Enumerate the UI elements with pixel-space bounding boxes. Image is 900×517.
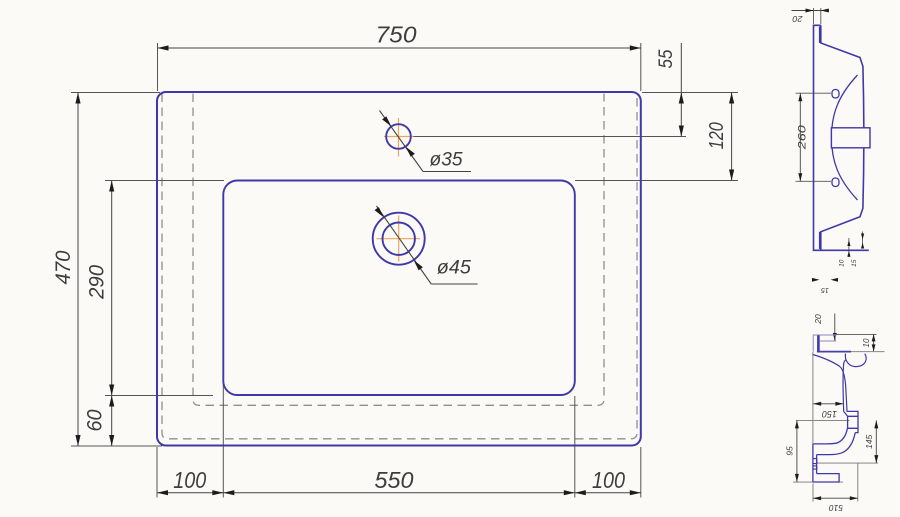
svg-text:550: 550 (375, 467, 414, 493)
svg-text:290: 290 (86, 265, 109, 300)
svg-text:15: 15 (821, 286, 829, 293)
svg-text:150: 150 (822, 409, 837, 419)
svg-text:100: 100 (592, 467, 625, 493)
svg-text:10: 10 (862, 338, 871, 347)
svg-text:ø45: ø45 (437, 258, 471, 279)
svg-text:15: 15 (851, 259, 858, 267)
svg-text:ø35: ø35 (430, 150, 463, 171)
svg-text:260: 260 (797, 124, 809, 150)
svg-text:510: 510 (829, 503, 843, 513)
svg-text:95: 95 (784, 446, 794, 456)
svg-text:120: 120 (706, 122, 728, 149)
svg-text:60: 60 (84, 409, 107, 431)
svg-text:20: 20 (813, 314, 823, 325)
svg-text:750: 750 (376, 21, 417, 47)
svg-text:55: 55 (656, 49, 677, 68)
svg-text:100: 100 (173, 467, 206, 493)
svg-text:10: 10 (838, 259, 845, 267)
svg-text:470: 470 (52, 250, 75, 284)
svg-text:145: 145 (864, 434, 874, 448)
svg-text:20: 20 (792, 14, 804, 23)
